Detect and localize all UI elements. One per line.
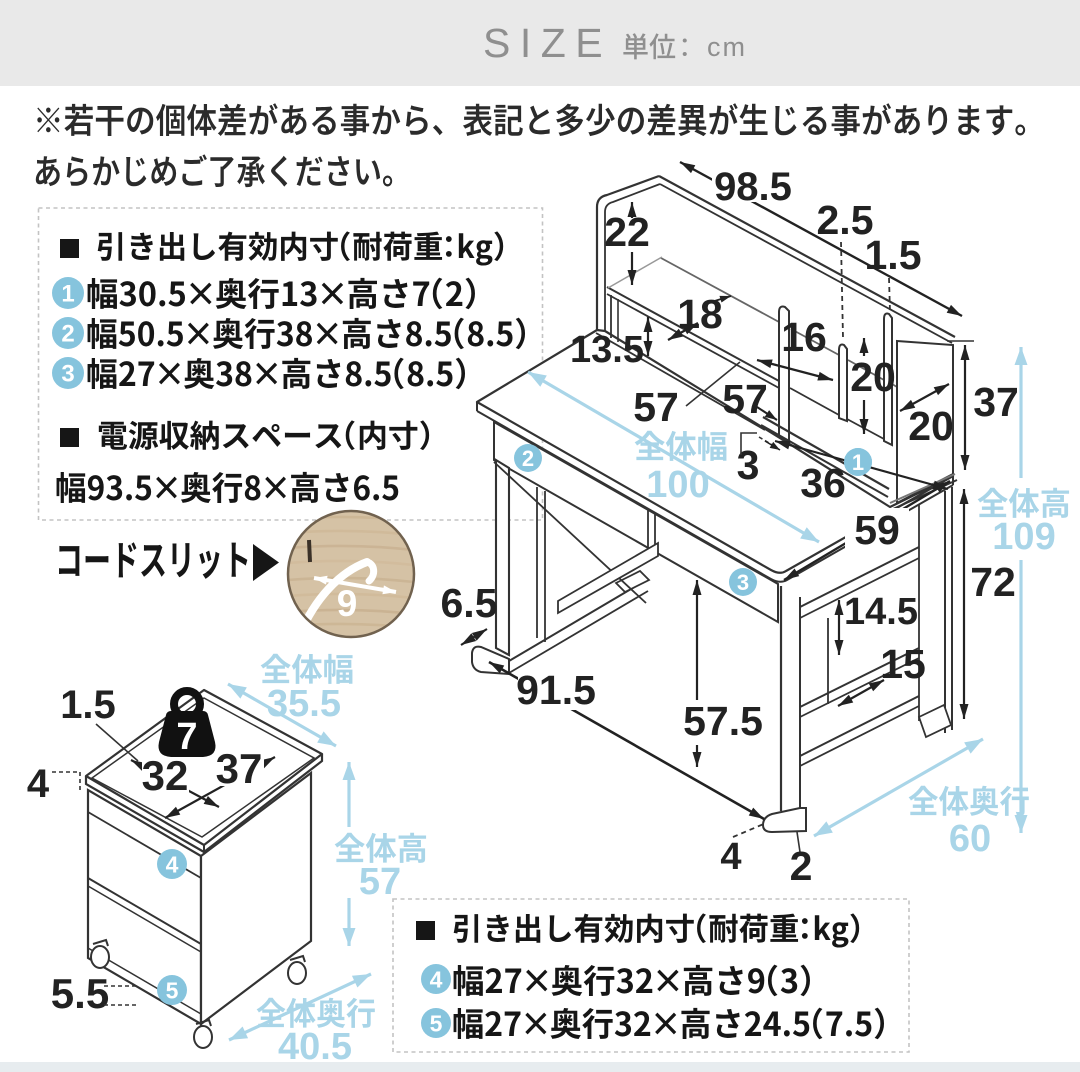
svg-text:14.5: 14.5 [844, 591, 918, 633]
svg-text:109: 109 [992, 516, 1055, 558]
svg-text:22: 22 [604, 209, 650, 255]
svg-text:3: 3 [737, 570, 749, 595]
svg-text:100: 100 [646, 464, 709, 506]
svg-text:2: 2 [522, 446, 534, 471]
svg-text:72: 72 [970, 559, 1016, 605]
svg-text:20: 20 [850, 354, 896, 400]
svg-text:4: 4 [27, 762, 50, 806]
svg-text:57: 57 [633, 384, 679, 430]
svg-text:59: 59 [854, 507, 900, 553]
svg-text:5: 5 [166, 977, 179, 1003]
svg-text:5: 5 [430, 1010, 443, 1036]
svg-text:1: 1 [852, 450, 864, 475]
svg-text:SIZE: SIZE [483, 20, 612, 66]
svg-text:60: 60 [949, 818, 991, 860]
svg-text:2: 2 [790, 843, 813, 889]
svg-text:1.5: 1.5 [865, 232, 922, 278]
svg-text:4: 4 [166, 851, 179, 877]
svg-text:37: 37 [973, 379, 1019, 425]
svg-text:16: 16 [781, 314, 827, 360]
svg-text:2: 2 [61, 321, 74, 348]
svg-text:35.5: 35.5 [267, 683, 341, 725]
svg-text:57.5: 57.5 [683, 698, 763, 744]
svg-text:40.5: 40.5 [278, 1026, 352, 1068]
svg-text:1.5: 1.5 [60, 683, 116, 727]
svg-text:4: 4 [720, 836, 741, 878]
svg-text:57: 57 [722, 376, 768, 422]
svg-text:4: 4 [430, 966, 443, 992]
svg-text:36: 36 [800, 460, 846, 506]
svg-text:15: 15 [880, 641, 926, 687]
svg-text:91.5: 91.5 [516, 667, 596, 713]
svg-text:6.5: 6.5 [441, 580, 498, 626]
svg-text:32: 32 [142, 752, 189, 799]
svg-text:57: 57 [359, 861, 401, 903]
svg-text:5.5: 5.5 [51, 970, 109, 1017]
svg-text:37: 37 [216, 745, 263, 792]
svg-text:20: 20 [908, 403, 954, 449]
svg-text:13.5: 13.5 [570, 329, 644, 371]
svg-text:：cm: ：cm [678, 32, 747, 62]
svg-text:3: 3 [737, 442, 760, 488]
svg-text:1: 1 [61, 281, 74, 308]
svg-text:9: 9 [337, 583, 358, 624]
svg-text:3: 3 [61, 361, 74, 388]
svg-text:98.5: 98.5 [714, 165, 792, 209]
